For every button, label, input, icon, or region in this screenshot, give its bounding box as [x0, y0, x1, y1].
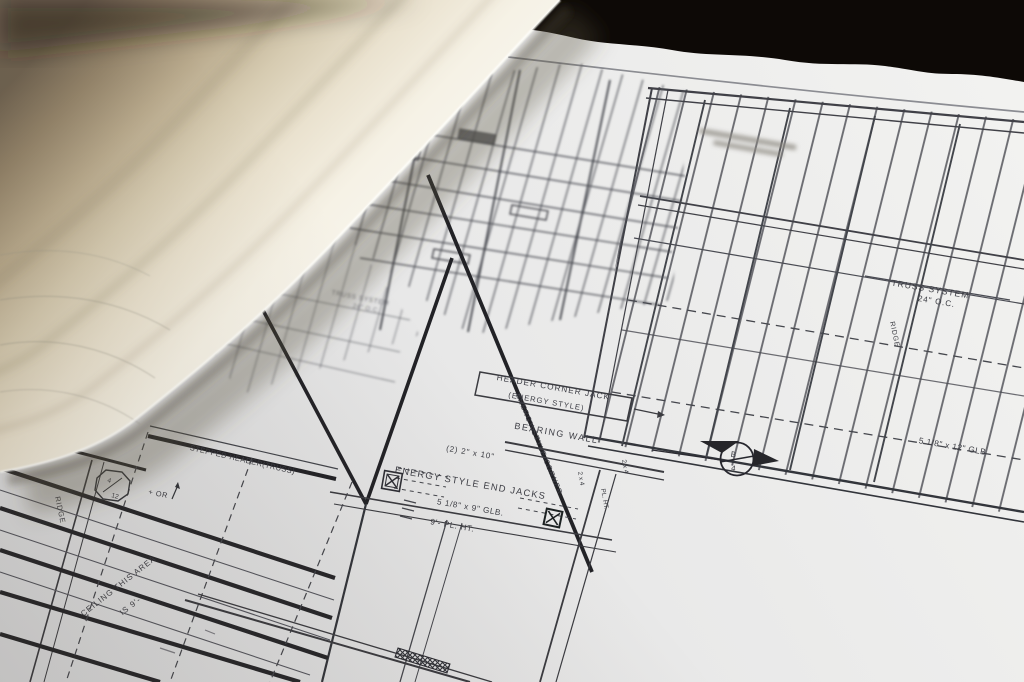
vignette	[0, 0, 1024, 682]
blueprint-scene: TRUSS SYSTEM 24" O.C. RIDGE 5 1/8" x 12"…	[0, 0, 1024, 682]
blueprint-photo: TRUSS SYSTEM 24" O.C. RIDGE 5 1/8" x 12"…	[0, 0, 1024, 682]
